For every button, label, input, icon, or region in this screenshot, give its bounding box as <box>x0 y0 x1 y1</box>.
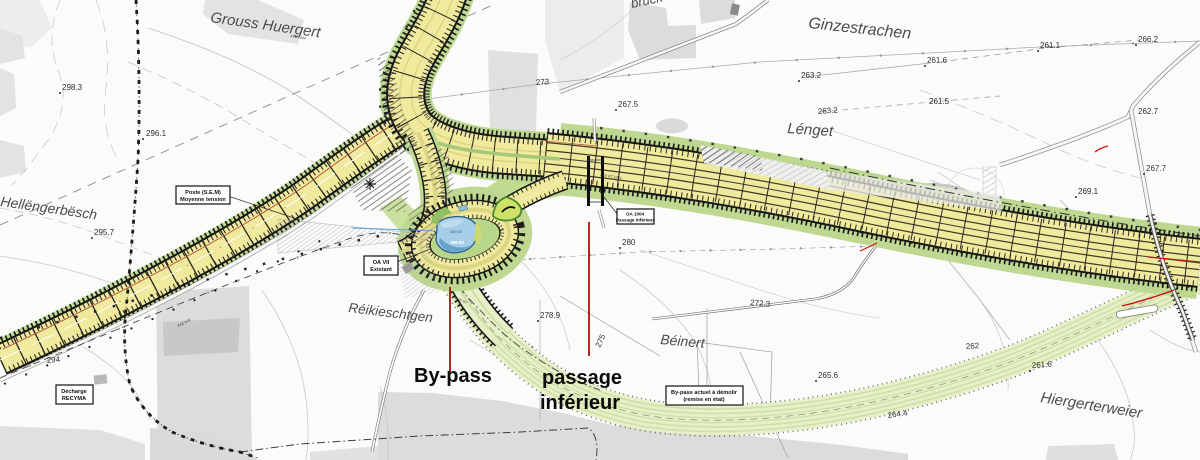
svg-text:OA 1004: OA 1004 <box>626 212 645 217</box>
svg-text:298.3: 298.3 <box>62 83 83 92</box>
svg-text:295.7: 295.7 <box>94 228 115 237</box>
svg-text:267.5: 267.5 <box>618 100 639 109</box>
svg-text:Décharge: Décharge <box>61 389 87 395</box>
svg-text:269.00: 269.00 <box>450 229 463 234</box>
svg-text:278.9: 278.9 <box>540 311 561 320</box>
svg-text:By-pass actuel à démolir: By-pass actuel à démolir <box>671 390 738 396</box>
svg-text:Lénget: Lénget <box>787 120 835 140</box>
svg-text:RECYMA: RECYMA <box>62 396 86 402</box>
svg-text:OA VII: OA VII <box>373 260 390 266</box>
svg-text:Passage inférieur: Passage inférieur <box>616 218 655 223</box>
svg-text:(remise en état): (remise en état) <box>683 397 724 403</box>
svg-text:266.2: 266.2 <box>1138 35 1159 44</box>
svg-text:Existant: Existant <box>370 267 392 273</box>
svg-text:261.1: 261.1 <box>1040 41 1061 50</box>
svg-text:296.1: 296.1 <box>146 129 167 138</box>
svg-text:280: 280 <box>622 238 636 247</box>
svg-text:261.5: 261.5 <box>929 97 950 106</box>
svg-text:Moyenne tension: Moyenne tension <box>180 197 226 203</box>
svg-text:By-pass: By-pass <box>414 365 492 387</box>
svg-text:262.7: 262.7 <box>1138 107 1159 116</box>
svg-text:Poste (S.E.M): Poste (S.E.M) <box>185 190 221 196</box>
svg-text:263.2: 263.2 <box>818 106 839 116</box>
svg-text:261.6: 261.6 <box>1032 360 1053 370</box>
svg-text:inférieur: inférieur <box>540 392 620 414</box>
svg-text:passage: passage <box>542 367 622 389</box>
svg-text:273: 273 <box>536 77 550 87</box>
svg-text:272.3: 272.3 <box>750 298 771 309</box>
svg-text:294: 294 <box>46 355 61 365</box>
svg-text:261.6: 261.6 <box>927 56 948 65</box>
svg-text:267.7: 267.7 <box>1146 164 1167 173</box>
svg-text:265.6: 265.6 <box>818 371 839 380</box>
svg-text:269.50: 269.50 <box>450 240 464 245</box>
svg-text:262: 262 <box>966 341 980 351</box>
svg-text:269.1: 269.1 <box>1078 187 1099 196</box>
svg-text:263.2: 263.2 <box>801 71 822 80</box>
